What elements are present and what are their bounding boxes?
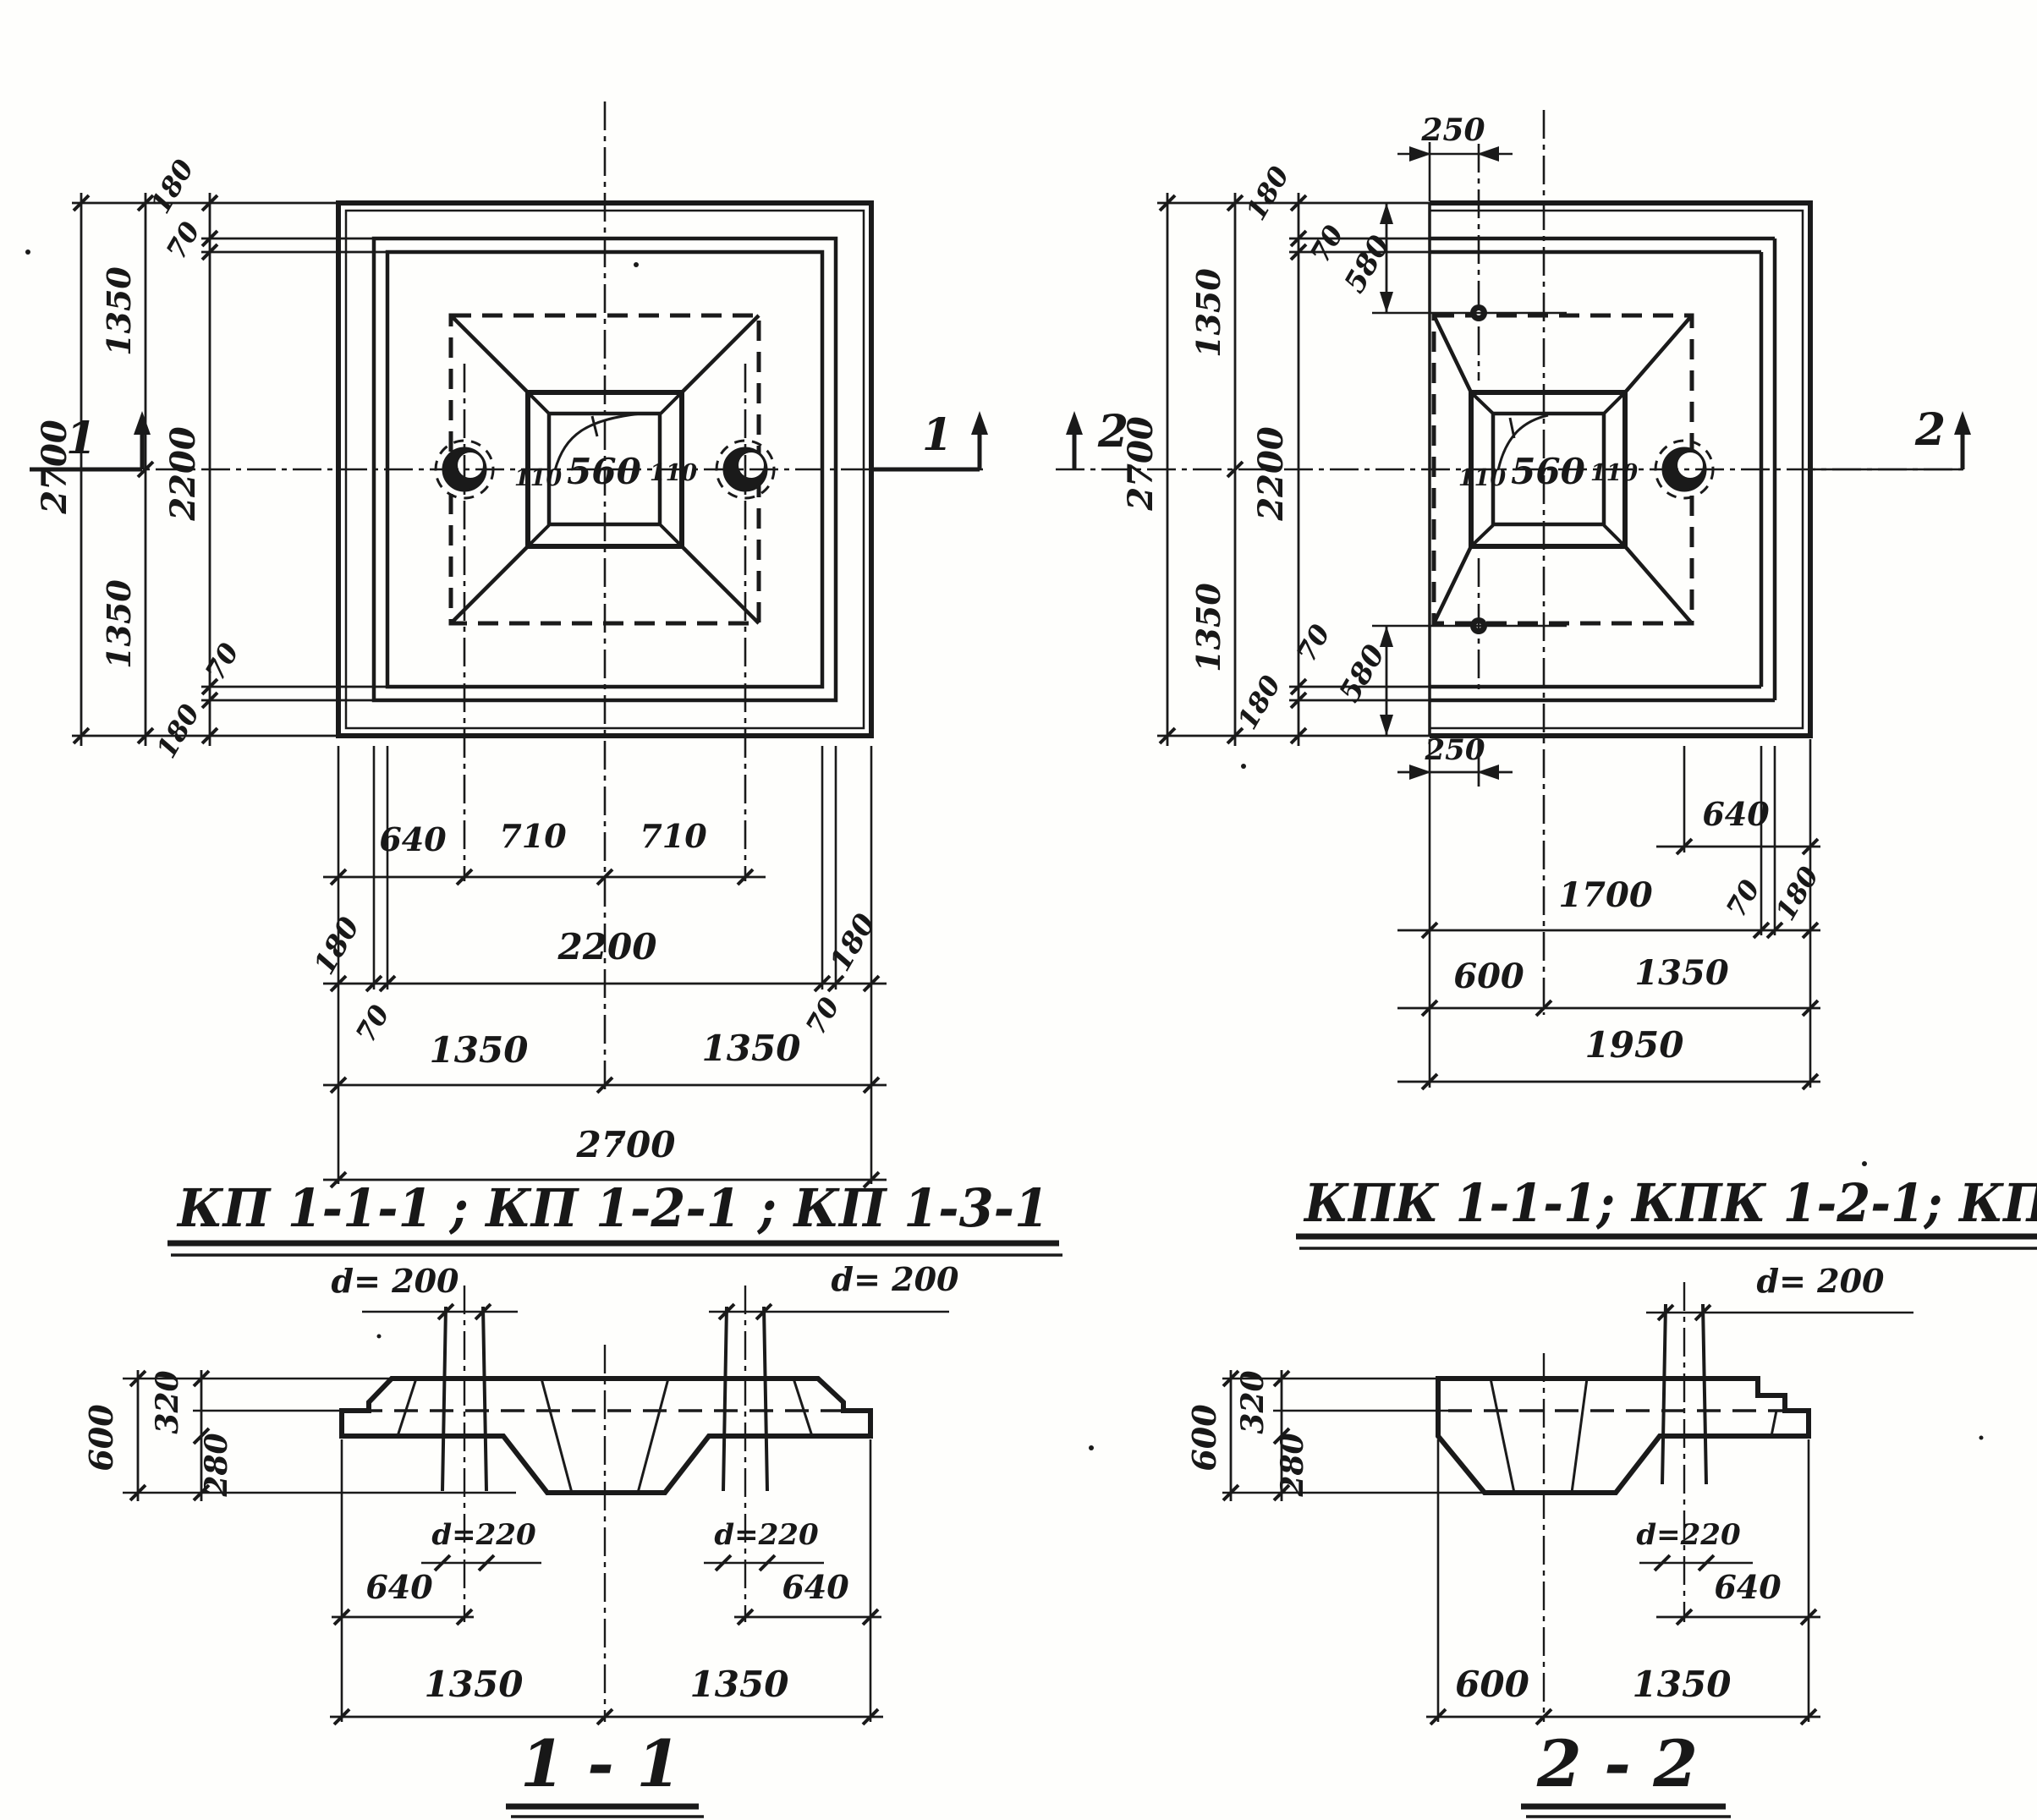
dim-2700-vertical: 2700	[35, 419, 74, 514]
marker-label: 1	[922, 409, 953, 461]
heading-right-text: КПК 1-1-1; КПК 1-2-1; КПК 1-3-1	[1303, 1172, 2037, 1234]
dim-d220-left: d=220	[431, 1518, 536, 1552]
dim-180-bottom: 180	[150, 699, 206, 764]
dim-d220: d=220	[1636, 1518, 1741, 1552]
dim-1350-top: 1350	[1189, 268, 1227, 358]
plan-left-view: 1 1 2700 1350 1350 2200 180 70 70 180 11…	[30, 101, 988, 1187]
dim-70-top: 70	[1304, 220, 1350, 269]
section-marker-2-left: 2	[1066, 406, 1128, 469]
dim-d200-left: d= 200	[332, 1262, 460, 1300]
section-1-1: d= 200 d= 200 d=220 d=220 600 320 280 64…	[82, 1260, 959, 1817]
dim-1700: 1700	[1558, 875, 1652, 915]
dim-180-bottom-right: 180	[823, 907, 882, 977]
blueprint-sheet: 1 1 2700 1350 1350 2200 180 70 70 180 11…	[0, 0, 2037, 1820]
dim-640-bottom: 640	[379, 820, 447, 858]
dim-110-right: 110	[650, 460, 698, 486]
dim-2200-vertical: 2200	[163, 426, 203, 521]
dim-d220-right: d=220	[714, 1518, 819, 1552]
dim-1350-left: 1350	[425, 1664, 524, 1705]
section-marker-2-right: 2	[1812, 404, 1971, 469]
dim-250-bottom: 250	[1425, 733, 1485, 767]
dim-d200: d= 200	[1757, 1262, 1886, 1300]
dim-110-right: 110	[1590, 460, 1639, 486]
dim-1350-top: 1350	[100, 266, 138, 356]
dim-2700-bottom: 2700	[576, 1124, 676, 1165]
section-2-title: 2 - 2	[1536, 1726, 1698, 1801]
dim-1350-bottom-left: 1350	[430, 1029, 529, 1071]
dim-70-bottom: 70	[1290, 619, 1337, 668]
dim-640-left: 640	[365, 1568, 433, 1606]
dim-2200-vertical: 2200	[1251, 426, 1291, 521]
dim-640-right: 640	[782, 1568, 849, 1606]
dim-180: 180	[1769, 861, 1825, 926]
dim-1350-right: 1350	[690, 1664, 789, 1705]
dim-280: 280	[199, 1433, 234, 1497]
dim-710-right: 710	[640, 817, 707, 855]
dim-280: 280	[1275, 1433, 1310, 1497]
section-marker-1-right: 1	[873, 409, 988, 469]
dim-110-left: 110	[1458, 465, 1507, 491]
dim-320: 320	[1235, 1370, 1271, 1434]
dim-180-top: 180	[1239, 161, 1295, 226]
dim-320: 320	[150, 1370, 185, 1434]
dim-580-bottom: 580	[1332, 639, 1392, 708]
dim-d200-right: d= 200	[832, 1260, 960, 1298]
centerlines	[1056, 110, 1966, 1015]
dim-70: 70	[1720, 874, 1766, 924]
dim-710-left: 710	[499, 817, 567, 855]
dim-70-bottom: 70	[199, 638, 245, 687]
plan-right-view: 2 2 250 2700 1350 1350 2200 180 70 580 7…	[1056, 110, 1971, 1089]
dim-1350-bottom-right: 1350	[702, 1028, 801, 1069]
heading-left-text: КП 1-1-1 ; КП 1-2-1 ; КП 1-3-1	[176, 1177, 1049, 1239]
dim-2700-vertical: 2700	[1121, 416, 1161, 511]
dim-1950: 1950	[1585, 1024, 1684, 1066]
dim-640-bottom: 640	[1702, 795, 1770, 833]
anchor-hole-top	[1372, 304, 1567, 321]
dim-1350: 1350	[1634, 953, 1728, 993]
dim-600-height: 600	[1185, 1404, 1223, 1472]
dim-250-top: 250	[1420, 112, 1485, 148]
marker-label: 2	[1914, 404, 1946, 456]
section-1-title: 1 - 1	[520, 1726, 681, 1801]
dim-70-bottom-right: 70	[799, 992, 846, 1041]
dim-70-top: 70	[160, 217, 206, 266]
heading-right: КПК 1-1-1; КПК 1-2-1; КПК 1-3-1	[1296, 1172, 2037, 1248]
dim-70-bottom-left: 70	[349, 1000, 396, 1049]
dim-1350-bottom: 1350	[100, 579, 138, 669]
section-2-2: d= 200 d=220 600 320 280 640 600 1350 2 …	[1185, 1262, 1913, 1817]
dim-180-bottom-left: 180	[307, 911, 366, 980]
drawing-canvas: 1 1 2700 1350 1350 2200 180 70 70 180 11…	[0, 0, 2037, 1820]
dim-560: 560	[1511, 451, 1585, 492]
dim-180-top: 180	[144, 154, 200, 219]
heading-left: КП 1-1-1 ; КП 1-2-1 ; КП 1-3-1	[167, 1177, 1062, 1255]
dim-2200-bottom: 2200	[557, 926, 657, 968]
scan-specks	[25, 249, 1984, 1450]
dim-180-bottom: 180	[1231, 670, 1287, 735]
dim-600: 600	[1453, 957, 1524, 996]
dim-1350-bottom: 1350	[1633, 1664, 1732, 1705]
dim-560: 560	[567, 451, 641, 492]
dim-600-bottom: 600	[1455, 1664, 1529, 1705]
dim-600-height: 600	[82, 1404, 120, 1472]
dim-640: 640	[1714, 1568, 1782, 1606]
dim-110-left: 110	[514, 465, 563, 491]
dim-1350-bottom: 1350	[1189, 583, 1227, 672]
